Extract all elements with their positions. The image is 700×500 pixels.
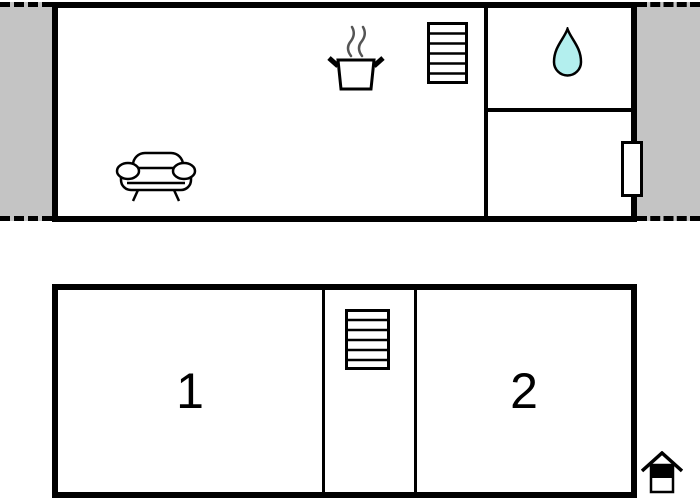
adjacent-building-left bbox=[0, 2, 52, 221]
room-1-label: 1 bbox=[176, 362, 204, 420]
stove-icon bbox=[325, 24, 387, 92]
floor-plan: 1 2 bbox=[0, 0, 700, 500]
sofa-icon bbox=[113, 150, 199, 202]
corridor-wall-left bbox=[322, 288, 325, 494]
entrance-house-icon bbox=[641, 451, 683, 496]
water-drop-icon bbox=[552, 27, 583, 78]
stairs-icon bbox=[345, 309, 390, 370]
window-marker bbox=[621, 141, 643, 197]
room-1: 1 bbox=[58, 290, 322, 492]
room-2-label: 2 bbox=[510, 362, 538, 420]
interior-wall-vertical bbox=[484, 6, 488, 218]
room-2: 2 bbox=[417, 290, 631, 492]
adjacent-building-right bbox=[637, 2, 700, 221]
interior-wall-horizontal bbox=[486, 108, 633, 112]
stairs-icon bbox=[427, 22, 468, 84]
